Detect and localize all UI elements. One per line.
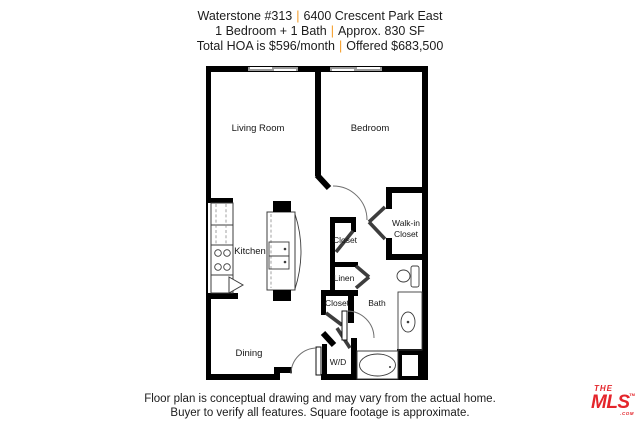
listing-floorplan-image: Waterstone #313|6400 Crescent Park East … [0, 0, 640, 427]
washer-dryer-label: W/D [330, 357, 347, 367]
disclaimer-line-1: Floor plan is conceptual drawing and may… [0, 392, 640, 406]
entry-door [291, 347, 321, 375]
kitchen-island [267, 201, 301, 301]
disclaimer-line-2: Buyer to verify all features. Square foo… [0, 406, 640, 420]
bathtub-shape [357, 351, 398, 379]
bedroom-label: Bedroom [351, 123, 390, 134]
bath-label: Bath [368, 298, 386, 308]
kitchen-label: Kitchen [234, 246, 266, 257]
linen-bifold-door [356, 266, 369, 288]
disclaimer: Floor plan is conceptual drawing and may… [0, 392, 640, 420]
floorplan-drawing: Living Room Bedroom Kitchen Dining Walk-… [0, 0, 640, 427]
hall-closet-label: Closet [333, 235, 358, 245]
window-living-room [248, 67, 298, 71]
toilet-shape [397, 266, 419, 287]
living-room-label: Living Room [232, 123, 285, 134]
pantry-door-swing [229, 277, 243, 293]
lower-closet-door [326, 313, 342, 325]
dining-label: Dining [236, 348, 263, 359]
logo-mls-text: MLS [591, 392, 630, 413]
vanity-sink-shape [398, 292, 422, 350]
bath-door [342, 311, 374, 340]
themls-logo: THE MLS TM .COM [591, 385, 633, 425]
walkin-closet-label-line1: Walk-in [392, 218, 420, 228]
window-bedroom [330, 67, 382, 71]
lower-closet-label: Closet [325, 298, 350, 308]
walkin-closet-bifold-door [369, 207, 385, 239]
bedroom-door-arc [333, 186, 367, 220]
walkin-closet-label-line2: Closet [394, 229, 419, 239]
logo-trademark: TM [629, 393, 635, 397]
linen-label: Linen [334, 273, 355, 283]
logo-com-text: .COM [620, 412, 634, 417]
